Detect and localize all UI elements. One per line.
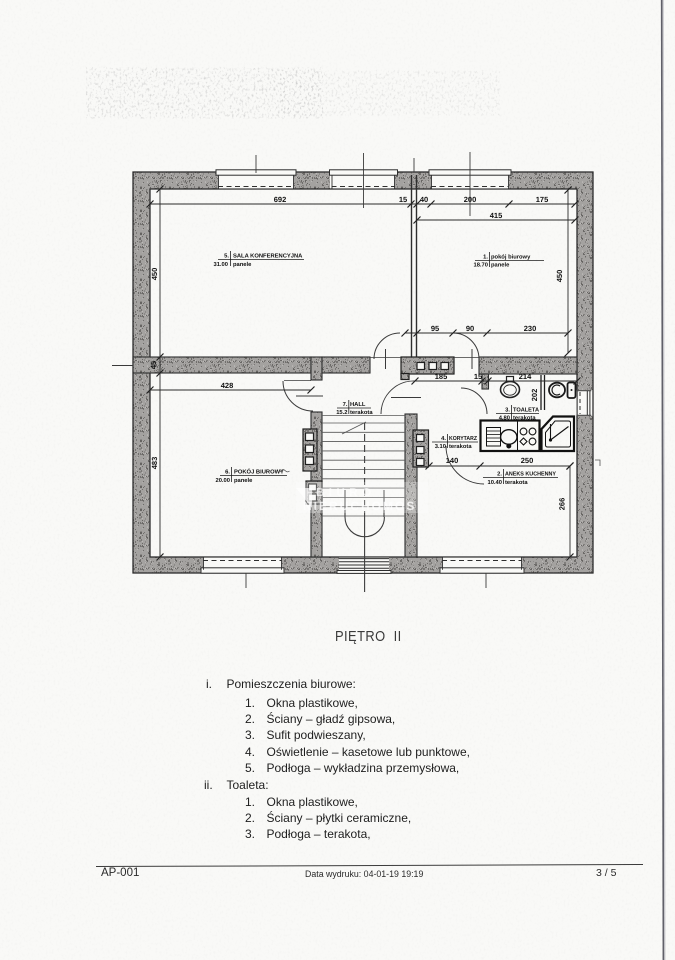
svg-text:4.80: 4.80 xyxy=(499,414,510,421)
svg-text:NIERUCHOMOS: NIERUCHOMOS xyxy=(303,499,416,513)
svg-text:15: 15 xyxy=(399,195,407,204)
svg-text:95: 95 xyxy=(431,324,439,333)
svg-text:428: 428 xyxy=(221,381,234,390)
svg-text:250: 250 xyxy=(521,456,534,465)
svg-text:terakota: terakota xyxy=(505,479,528,486)
svg-text:2.: 2. xyxy=(497,471,502,478)
svg-text:KORYTARZ: KORYTARZ xyxy=(449,435,477,442)
svg-text:10.40: 10.40 xyxy=(487,479,502,486)
svg-text:692: 692 xyxy=(274,195,287,204)
svg-text:18.70: 18.70 xyxy=(473,262,488,269)
svg-text:31.00: 31.00 xyxy=(213,261,228,268)
svg-text:15.2: 15.2 xyxy=(336,409,347,416)
svg-text:pokój biurowy: pokój biurowy xyxy=(491,254,531,261)
svg-text:terakota: terakota xyxy=(350,409,373,416)
svg-text:90: 90 xyxy=(466,324,474,333)
svg-text:panele: panele xyxy=(491,262,510,269)
svg-text:45: 45 xyxy=(149,361,158,369)
svg-text:140: 140 xyxy=(446,456,459,465)
svg-text:SALA KONFERENCYJNA: SALA KONFERENCYJNA xyxy=(233,253,303,260)
svg-text:7.: 7. xyxy=(343,402,348,408)
svg-text:40: 40 xyxy=(420,195,428,204)
svg-text:5.: 5. xyxy=(224,254,229,260)
svg-text:230: 230 xyxy=(524,324,537,333)
svg-text:450: 450 xyxy=(555,270,564,283)
svg-text:6.: 6. xyxy=(225,469,230,476)
svg-text:HALL: HALL xyxy=(350,402,366,408)
svg-text:20.00: 20.00 xyxy=(215,477,230,484)
svg-text:terakota: terakota xyxy=(449,443,472,450)
svg-text:3.10: 3.10 xyxy=(435,443,446,450)
svg-text:266: 266 xyxy=(558,498,567,511)
svg-text:terakota: terakota xyxy=(513,414,536,421)
svg-text:ANEKS KUCHENNY: ANEKS KUCHENNY xyxy=(505,471,556,478)
svg-text:415: 415 xyxy=(490,211,503,220)
svg-text:4.: 4. xyxy=(441,436,446,442)
svg-text:panele: panele xyxy=(234,477,253,484)
svg-text:POKÓJ BIUROWY: POKÓJ BIUROWY xyxy=(234,468,284,476)
svg-text:3.: 3. xyxy=(505,407,510,414)
svg-text:185: 185 xyxy=(435,372,448,381)
svg-text:483: 483 xyxy=(150,457,159,470)
svg-text:450: 450 xyxy=(150,268,159,281)
svg-text:TOALETA: TOALETA xyxy=(513,407,540,414)
svg-text:15: 15 xyxy=(474,372,482,381)
svg-text:1.: 1. xyxy=(483,255,488,261)
svg-text:panele: panele xyxy=(233,261,252,268)
svg-text:BIURO: BIURO xyxy=(316,487,376,499)
svg-text:175: 175 xyxy=(536,195,549,204)
svg-text:214: 214 xyxy=(519,372,532,381)
svg-text:202: 202 xyxy=(530,389,539,402)
